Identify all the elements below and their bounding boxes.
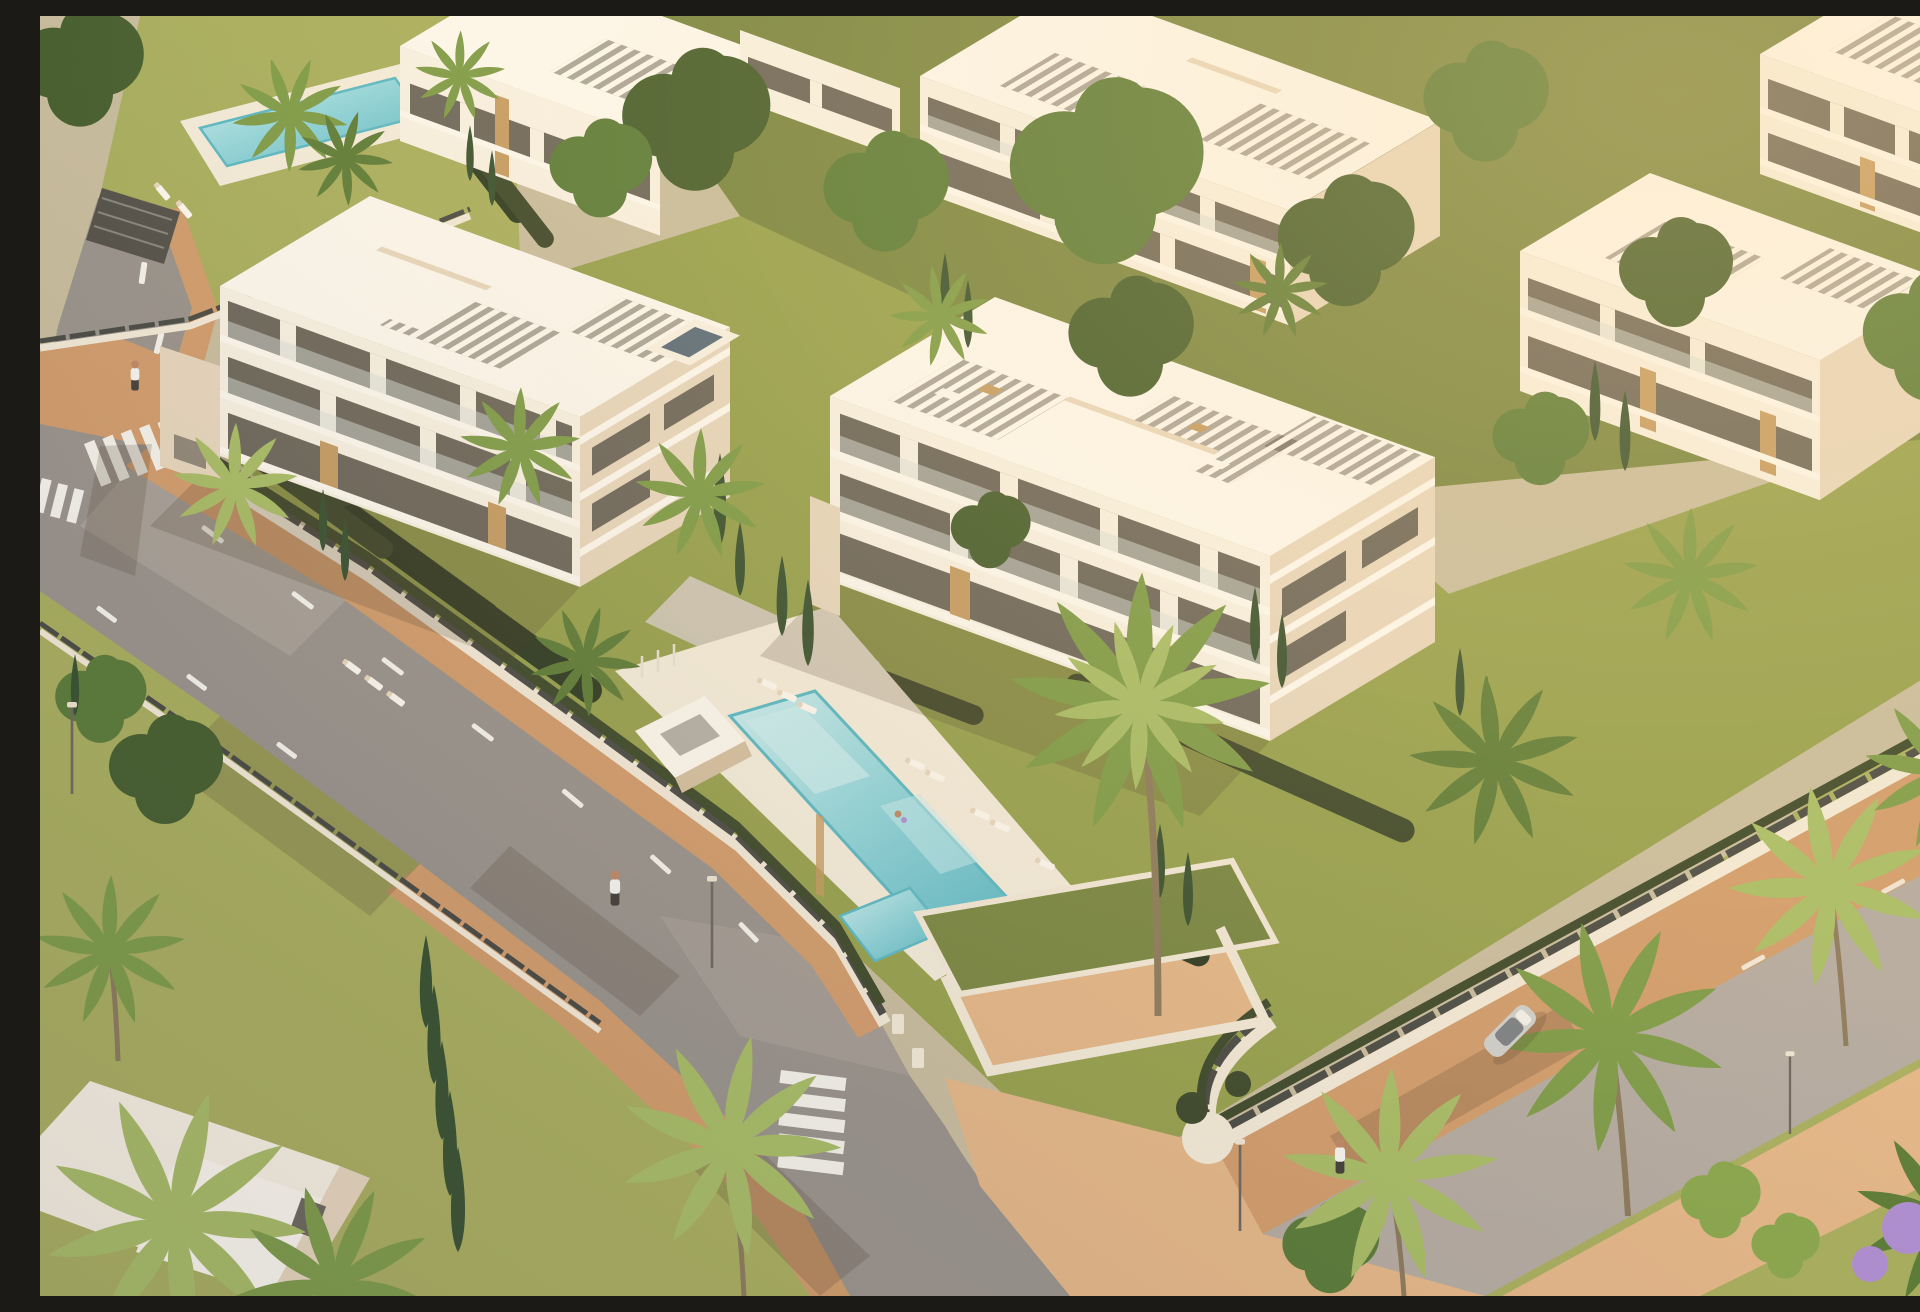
cool-corner-overlay: [40, 16, 1920, 1296]
render-canvas: Aerial render of a modern white resident…: [40, 16, 1920, 1296]
aerial-render: Aerial render of a modern white resident…: [40, 16, 1920, 1296]
